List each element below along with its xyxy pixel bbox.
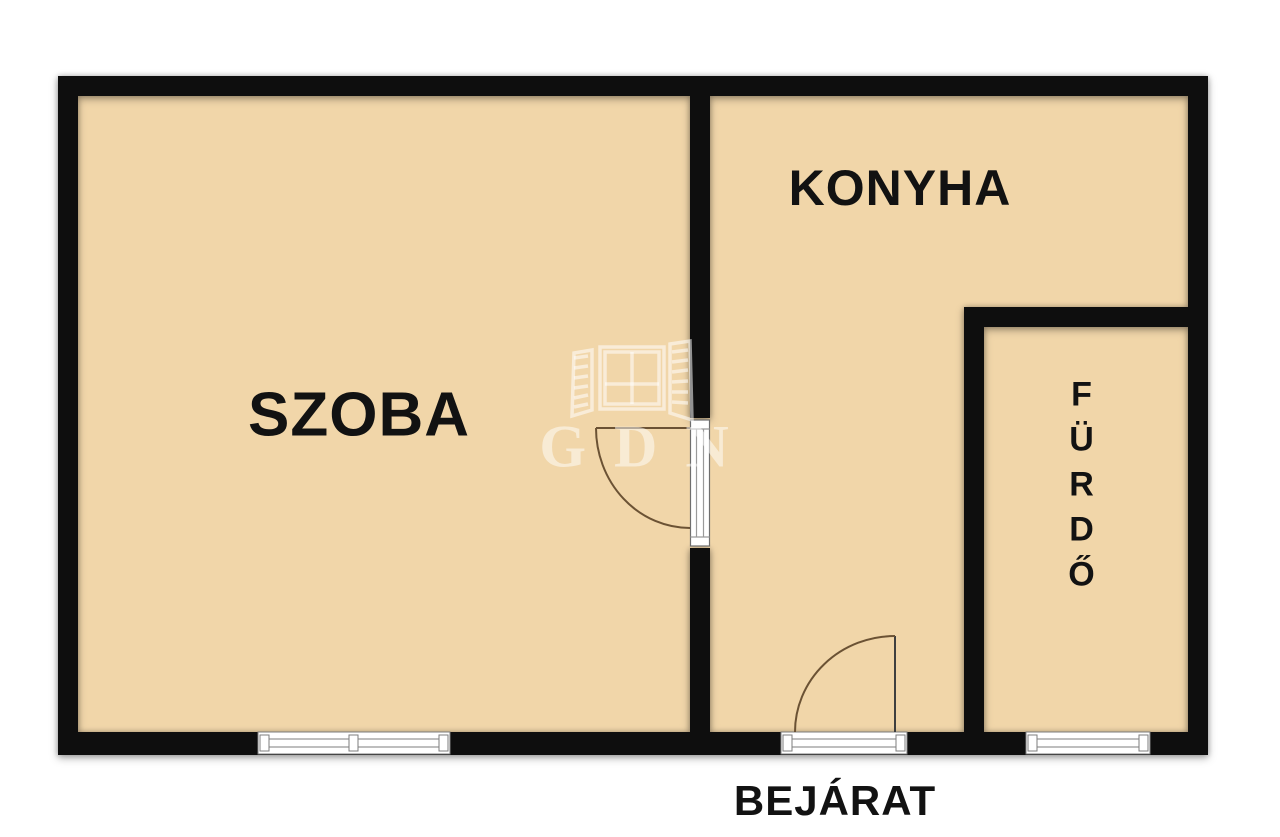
- window-furdo: [1026, 732, 1150, 754]
- entrance-threshold: [781, 732, 907, 754]
- floorplan-canvas: GDN SZOBA KONYHA FÜRDŐ BEJÁRAT: [0, 0, 1280, 837]
- wall-bathroom-left: [964, 307, 984, 732]
- wall-top: [58, 76, 1208, 96]
- wall-divider-lower: [690, 548, 710, 732]
- wall-right: [1188, 76, 1208, 755]
- wall-left: [58, 76, 78, 755]
- gdn-watermark-text: GDN: [539, 413, 756, 482]
- wall-divider-upper: [690, 96, 710, 418]
- entrance-label: BEJÁRAT: [734, 777, 936, 825]
- window-szoba: [258, 732, 450, 754]
- room-label-szoba: SZOBA: [248, 380, 470, 451]
- room-label-furdo: FÜRDŐ: [1062, 376, 1101, 601]
- room-label-konyha: KONYHA: [789, 159, 1012, 217]
- wall-bathroom-top: [964, 307, 1188, 327]
